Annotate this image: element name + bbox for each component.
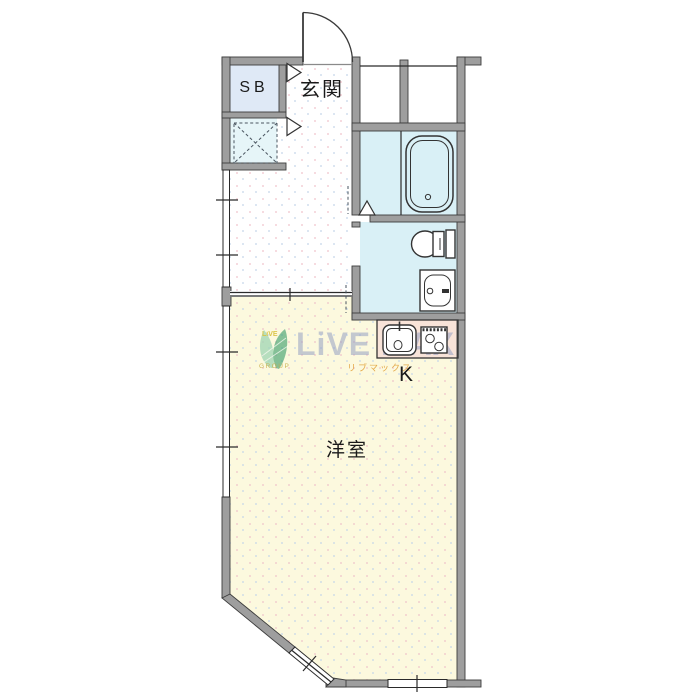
floorplan-canvas: LiVE LiVE MAX GROUP リブマックス <box>0 0 700 700</box>
laundry-door-icon <box>287 118 301 136</box>
bathtub-icon <box>406 136 453 212</box>
stove-icon <box>421 327 447 353</box>
western-room-label: 洋室 <box>313 441 381 460</box>
entrance-door-icon <box>303 13 353 63</box>
floorplan-structure <box>0 0 700 700</box>
toilet-icon <box>412 230 456 258</box>
shoe-box-door-icon <box>287 64 301 82</box>
entrance-label: 玄関 <box>286 80 358 100</box>
washing-machine-pan-icon <box>234 123 277 163</box>
kitchen-sink-icon <box>383 322 416 356</box>
shoe-box-label: SB <box>229 80 279 96</box>
washbasin-icon <box>420 270 455 311</box>
walls <box>222 57 481 687</box>
kitchen-label: K <box>392 364 420 385</box>
bathroom-door-icon <box>359 201 375 215</box>
